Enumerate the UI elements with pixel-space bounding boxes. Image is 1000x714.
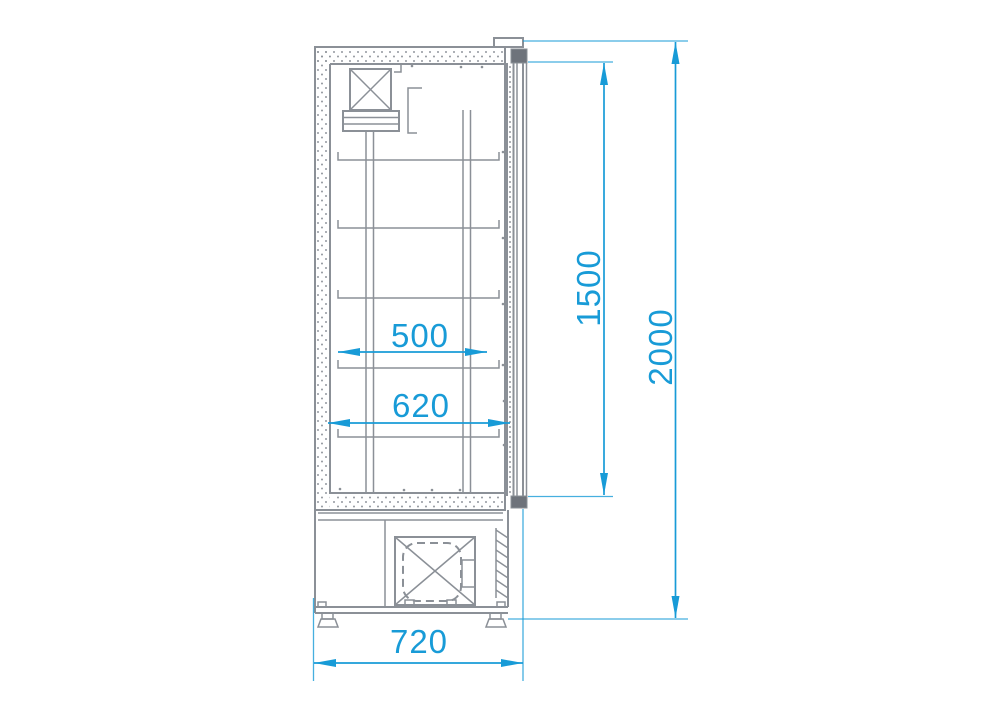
- shelf: [338, 290, 499, 298]
- shelf: [338, 360, 499, 368]
- fixing-dots: [339, 65, 506, 492]
- arrow-up: [672, 42, 680, 64]
- adjustable-foot-right: [486, 619, 506, 627]
- compressor-terminal-box: [462, 560, 475, 587]
- evaporator-fan-unit: [343, 64, 422, 133]
- cabinet-side-section-drawing: 500 620 1500 2000 720: [0, 0, 1000, 714]
- technical-drawing-canvas: 500 620 1500 2000 720: [0, 0, 1000, 714]
- dimension-overall-depth: 720: [314, 509, 524, 681]
- dimension-overall-height: 2000: [508, 41, 688, 619]
- compartment-top-panel: [318, 513, 503, 520]
- insulation-left: [317, 49, 330, 510]
- shelf: [338, 429, 499, 437]
- arrow-right: [501, 659, 523, 667]
- ceiling-hook: [394, 64, 401, 72]
- machine-compartment: [315, 510, 508, 627]
- rail-right: [463, 110, 471, 493]
- top-hinge-block: [511, 49, 527, 63]
- shelf: [338, 220, 499, 228]
- dimension-label-500: 500: [391, 317, 449, 354]
- arrow-right: [465, 348, 487, 356]
- adjustable-foot-left: [318, 619, 338, 627]
- arrow-down: [672, 596, 680, 618]
- rail-left: [366, 131, 374, 493]
- dimension-label-720: 720: [390, 623, 448, 660]
- insulation-bottom: [331, 494, 504, 510]
- base-plate: [315, 607, 508, 613]
- compressor-mount: [447, 600, 456, 605]
- dimension-label-1500: 1500: [570, 249, 607, 326]
- dimension-door-height: 1500: [528, 62, 613, 497]
- foot-mount-right: [497, 602, 505, 607]
- dimension-shelf-width: 500: [338, 317, 487, 356]
- inner-liner: [330, 64, 505, 493]
- fan-housing-fins: [343, 118, 399, 125]
- dimension-label-2000: 2000: [642, 308, 679, 385]
- door-top-plate: [494, 38, 523, 47]
- shelf: [338, 152, 499, 160]
- dimension-interior-depth: 620: [328, 387, 510, 427]
- arrow-down: [600, 473, 608, 495]
- dimension-label-620: 620: [392, 387, 450, 424]
- arrow-left: [338, 348, 360, 356]
- arrow-left: [314, 659, 336, 667]
- compressor-mount: [405, 600, 414, 605]
- drain-bracket: [408, 88, 422, 133]
- fan-housing: [343, 111, 399, 131]
- door-panel-inner-lines: [517, 63, 527, 496]
- foot-mount-left: [318, 602, 326, 607]
- arrow-left: [328, 419, 350, 427]
- bottom-hinge-block: [511, 496, 527, 508]
- compressor-unit: [395, 537, 475, 605]
- insulation-top: [317, 49, 505, 64]
- shelf-rails: [366, 110, 471, 493]
- vent-louvres: [496, 530, 508, 598]
- arrow-up: [600, 63, 608, 85]
- fan-cross: [350, 69, 391, 110]
